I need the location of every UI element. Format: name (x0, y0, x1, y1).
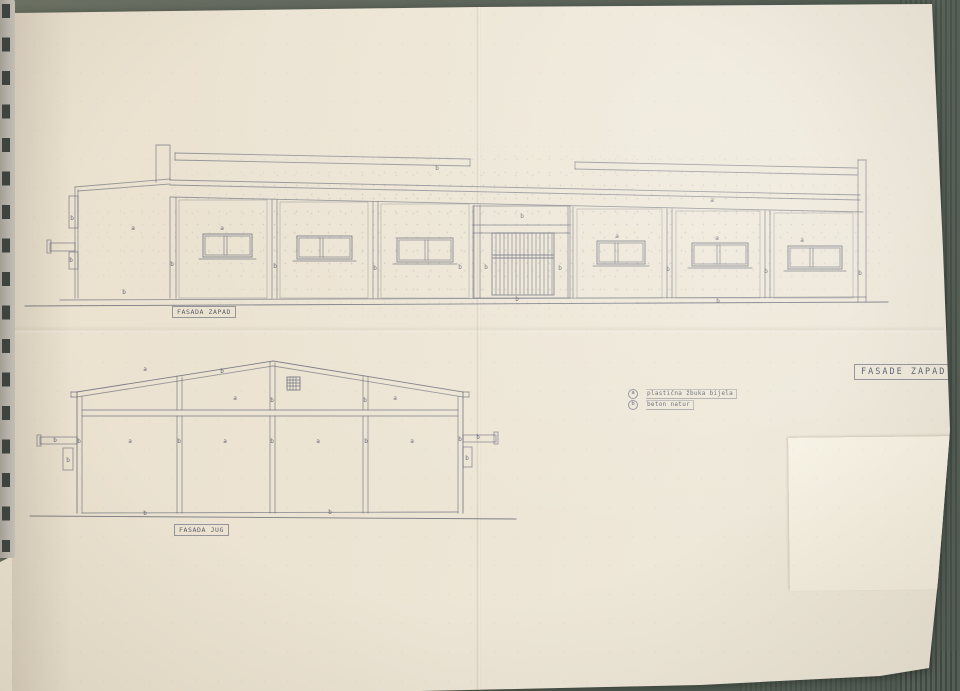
legend-key-circle-b: b (628, 400, 638, 410)
material-label: b (558, 265, 562, 272)
underlying-white-sheet-corner (788, 436, 953, 591)
window-bay-6 (688, 243, 752, 268)
material-label: b (70, 215, 74, 222)
material-label: b (77, 438, 81, 445)
material-label: b (220, 368, 224, 375)
material-label: b (476, 434, 480, 441)
material-label: b (273, 263, 277, 270)
window-bay-7 (784, 246, 846, 271)
material-label: a (128, 438, 132, 445)
material-label: b (270, 397, 274, 404)
material-label: b (363, 397, 367, 404)
material-label: b (364, 438, 368, 445)
material-label: b (66, 457, 70, 464)
paper-left-shading (12, 0, 72, 691)
material-label: a (393, 395, 397, 402)
window-bay-3 (393, 238, 457, 264)
material-label: b (143, 510, 147, 517)
west-elevation-linework (25, 145, 888, 306)
west-elevation-caption: FASADA ZAPAD (172, 306, 236, 318)
legend-text-a: plastična žbuka bijela (646, 389, 737, 399)
west-elevation-drawing: abbbabbbbbbbbaaaabbbbb (20, 140, 900, 330)
material-label: b (122, 289, 126, 296)
legend-item-a: a plastična žbuka bijela (628, 388, 737, 399)
comb-binding-strip (0, 0, 15, 558)
south-elevation-material-labels: abababaaaabbbbbbbbbbb (53, 366, 480, 517)
door-slats (496, 234, 552, 294)
photo-of-architectural-drawing: abbbabbbbbbbbaaaabbbbb (0, 0, 960, 691)
material-label: b (515, 296, 519, 303)
material-label: a (316, 438, 320, 445)
material-label: a (410, 438, 414, 445)
legend-key-circle-a: a (628, 389, 638, 399)
material-label: b (666, 266, 670, 273)
material-label: b (858, 270, 862, 277)
material-label: b (716, 298, 720, 305)
window-bay-2 (293, 236, 356, 261)
material-legend: a plastična žbuka bijela b beton natur (628, 388, 737, 410)
material-label: a (143, 366, 147, 373)
sheet-title: FASADE ZAPAD I (854, 364, 960, 380)
material-label: a (233, 395, 237, 402)
window-bay-1 (199, 234, 256, 259)
blueprint-paper-sheet: abbbabbbbbbbbaaaabbbbb (0, 0, 960, 691)
south-elevation-caption: FASADA JUG (174, 524, 229, 536)
window-bay-5 (593, 241, 649, 266)
material-label: a (220, 225, 224, 232)
material-label: a (800, 237, 804, 244)
material-label: a (615, 233, 619, 240)
material-label: b (270, 438, 274, 445)
material-label: a (131, 225, 135, 232)
legend-text-b: beton natur (646, 400, 694, 410)
material-label: b (764, 268, 768, 275)
material-label: b (53, 437, 57, 444)
material-label: b (458, 264, 462, 271)
vertical-fold-crease (476, 6, 481, 691)
material-label: a (710, 197, 714, 204)
material-label: a (715, 235, 719, 242)
legend-item-b: b beton natur (628, 399, 737, 410)
material-label: b (484, 264, 488, 271)
gable-vent-grille (287, 377, 300, 390)
material-label: b (328, 509, 332, 516)
material-label: b (435, 165, 439, 172)
material-label: b (373, 265, 377, 272)
material-label: b (69, 257, 73, 264)
material-label: b (458, 436, 462, 443)
material-label: b (170, 261, 174, 268)
material-label: b (177, 438, 181, 445)
material-label: b (465, 455, 469, 462)
paper-sheet-wrapper: abbbabbbbbbbbaaaabbbbb (0, 0, 960, 691)
material-label: b (520, 213, 524, 220)
binding-slots (2, 4, 10, 552)
south-elevation-drawing: abababaaaabbbbbbbbbbb (20, 350, 520, 545)
material-label: a (223, 438, 227, 445)
